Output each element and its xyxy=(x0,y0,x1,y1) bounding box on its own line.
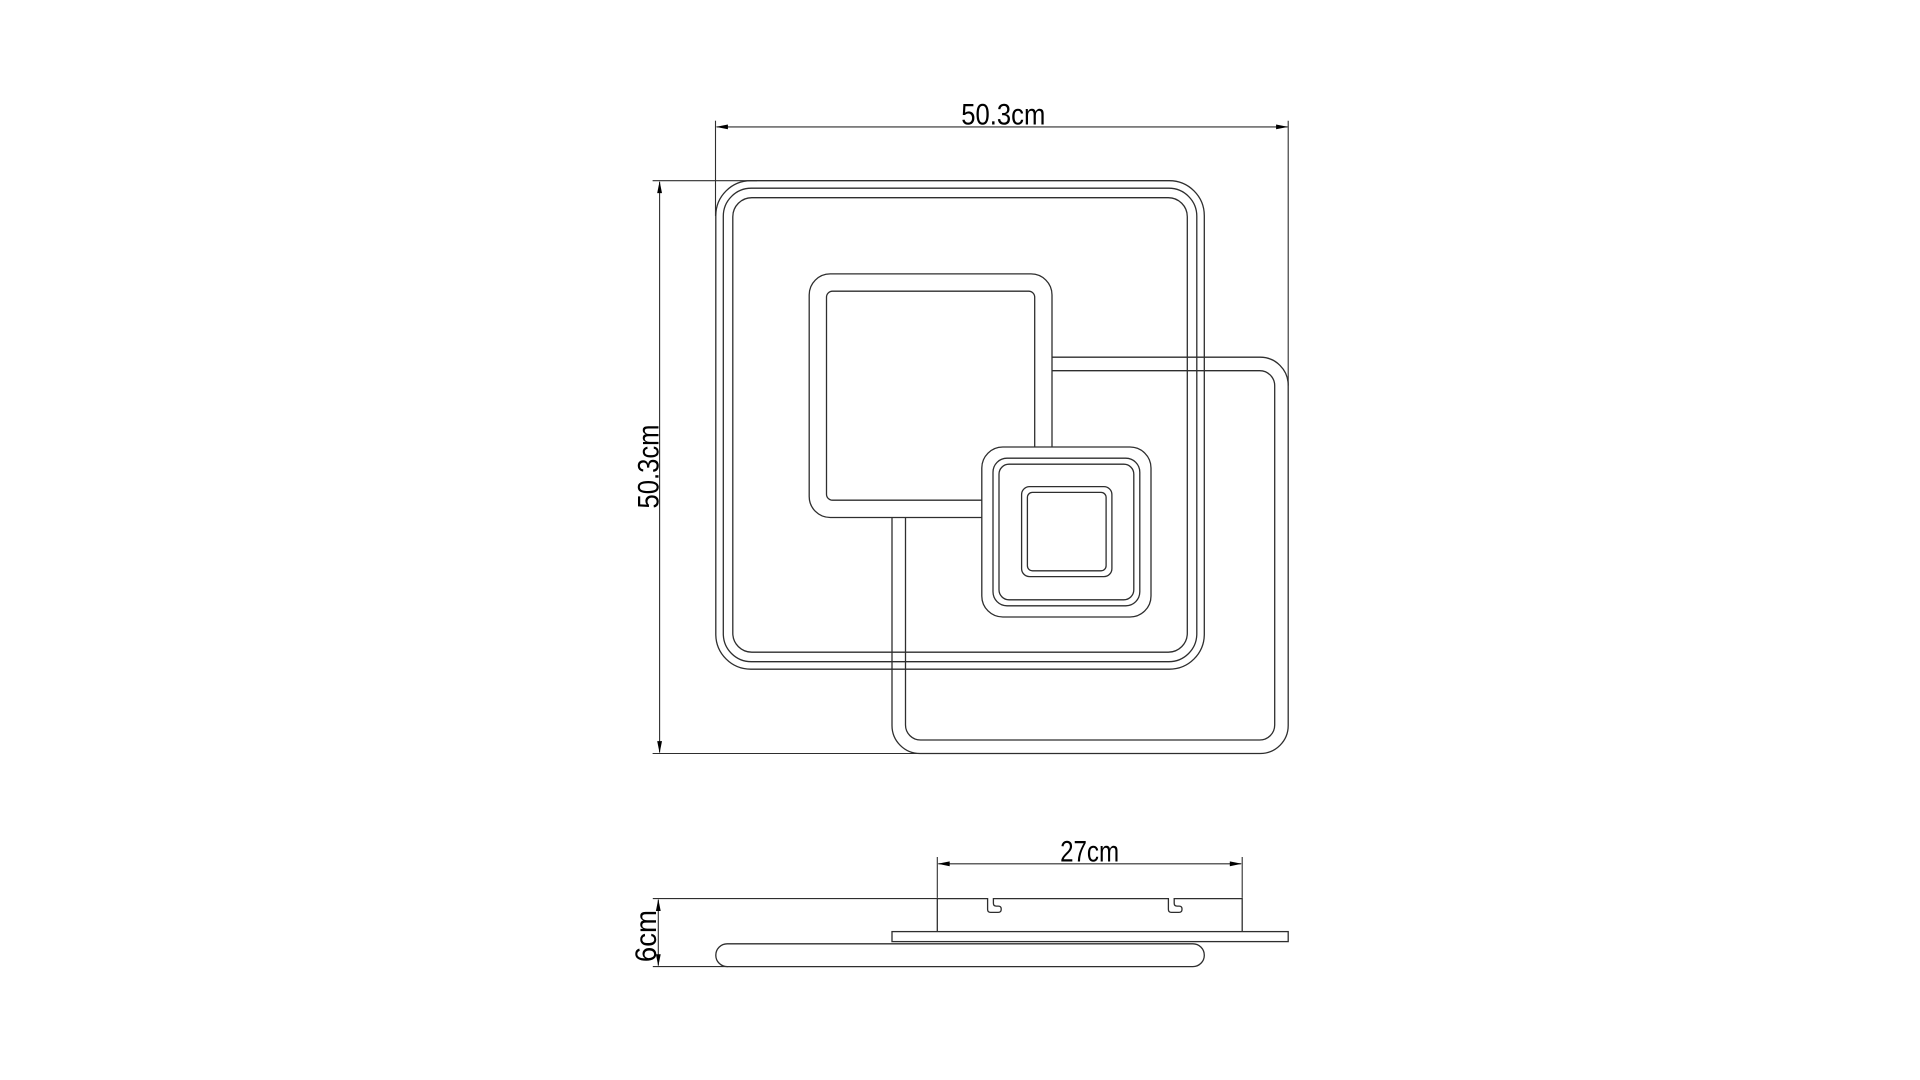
svg-text:27cm: 27cm xyxy=(1060,835,1119,868)
svg-text:50.3cm: 50.3cm xyxy=(632,425,665,509)
svg-text:50.3cm: 50.3cm xyxy=(961,99,1045,132)
svg-text:6cm: 6cm xyxy=(630,910,663,962)
